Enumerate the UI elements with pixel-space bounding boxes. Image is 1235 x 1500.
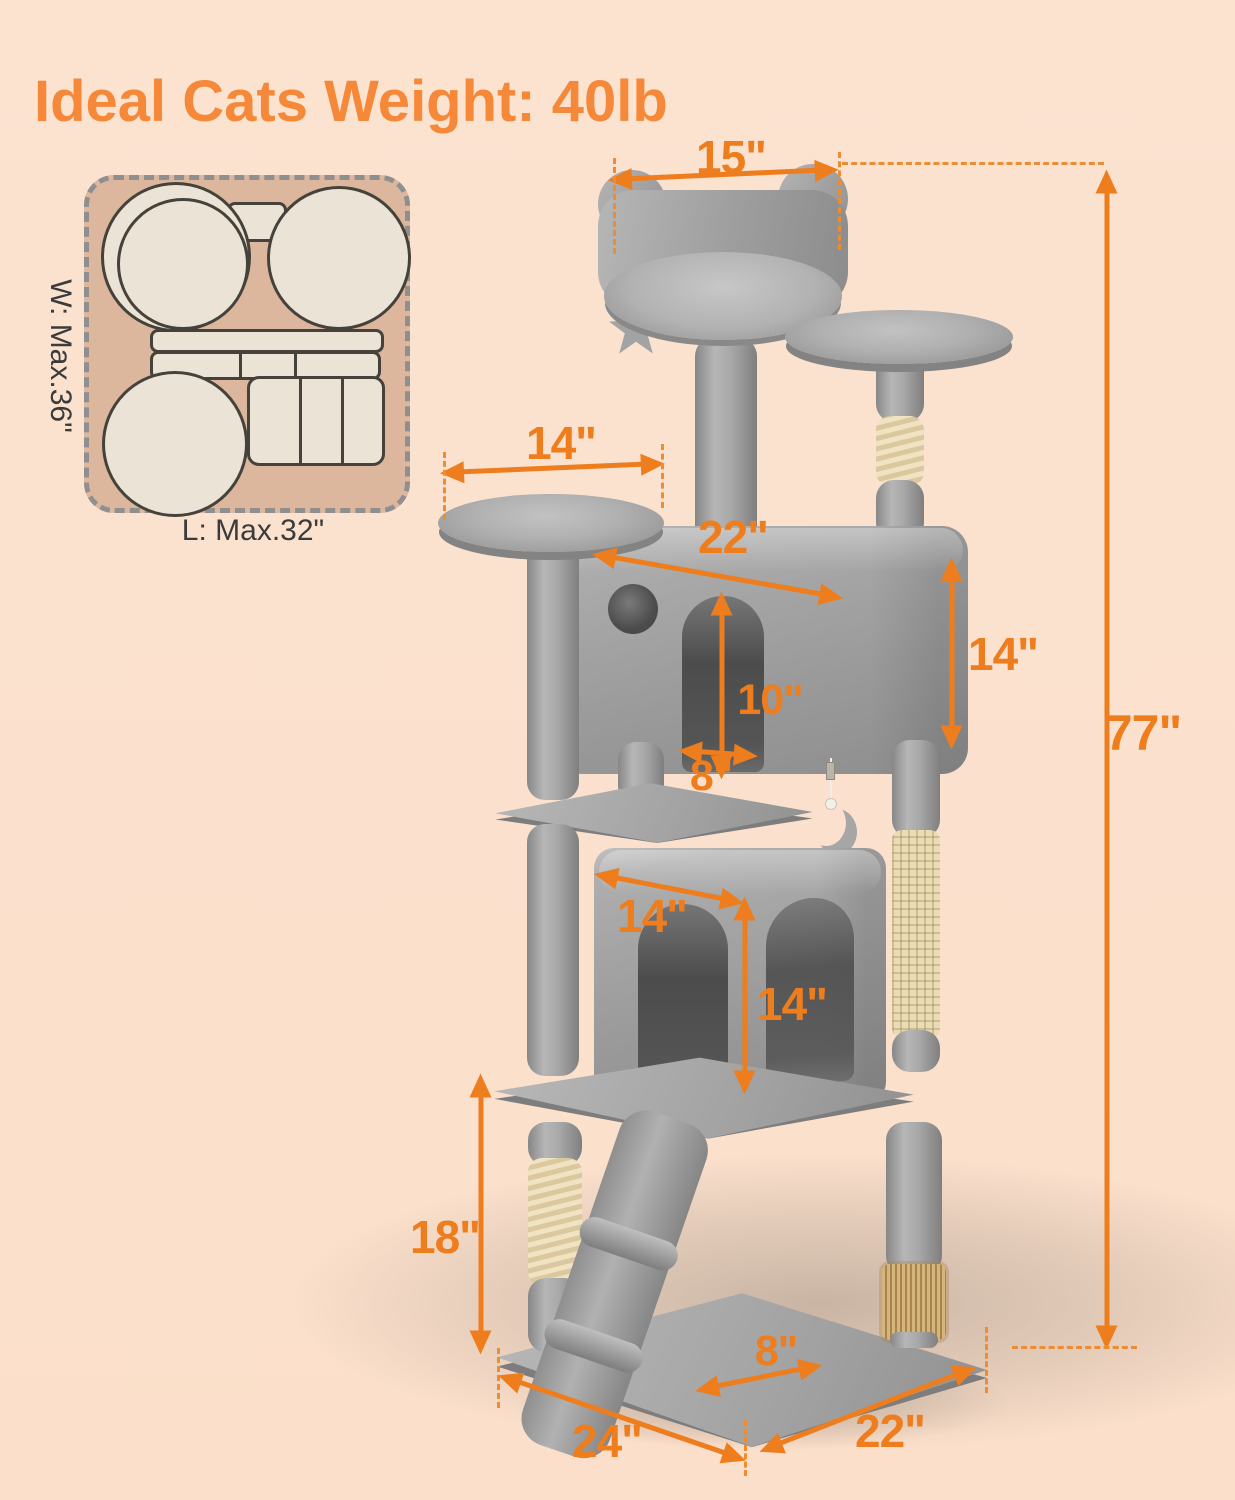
dim-arrow-upper-door-height bbox=[720, 597, 725, 775]
dim-extension-line bbox=[443, 452, 446, 520]
dim-lower-condo-width: 14" bbox=[582, 889, 722, 943]
footprint-divider bbox=[341, 376, 344, 466]
dim-extension-line bbox=[842, 162, 1104, 165]
right-scratch-post-top bbox=[892, 740, 940, 838]
left-round-platform bbox=[438, 494, 664, 552]
dim-upper-platform: 14" bbox=[491, 416, 631, 470]
bottom-right-post bbox=[886, 1122, 942, 1274]
dim-extension-line bbox=[661, 444, 664, 508]
right-round-platform bbox=[785, 310, 1013, 364]
footprint-band-upper bbox=[150, 329, 384, 353]
footprint-width-label: W: Max.36" bbox=[43, 236, 77, 476]
dim-upper-condo-width: 22" bbox=[663, 510, 803, 564]
product-dimension-diagram: Ideal Cats Weight: 40lb W: Max.36" L: Ma… bbox=[0, 0, 1235, 1500]
bottom-right-post-foot bbox=[890, 1332, 938, 1348]
dim-extension-line bbox=[744, 1420, 747, 1476]
right-platform-sisal-section bbox=[876, 416, 924, 486]
grooming-brush bbox=[882, 1264, 946, 1340]
dim-arrow-lower-post-height bbox=[479, 1079, 484, 1350]
footprint-divider bbox=[239, 351, 242, 380]
dim-ramp-width: 8" bbox=[706, 1327, 846, 1376]
dim-base-depth: 22" bbox=[820, 1404, 960, 1458]
dim-base-length: 24" bbox=[537, 1414, 677, 1468]
footprint-divider bbox=[299, 376, 302, 466]
page-title: Ideal Cats Weight: 40lb bbox=[34, 68, 668, 135]
moon-toy-clip bbox=[826, 762, 835, 780]
left-lower-post bbox=[527, 824, 579, 1076]
ramp-rung bbox=[576, 1213, 682, 1275]
dim-overall-height: 77" bbox=[1073, 704, 1213, 762]
footprint-platform-bottom-left bbox=[102, 371, 248, 517]
left-upper-post bbox=[527, 538, 579, 800]
footprint-length-label: L: Max.32" bbox=[133, 514, 373, 548]
footprint-box-bottom-right bbox=[247, 376, 385, 466]
ramp-rung bbox=[540, 1315, 646, 1377]
footprint-bed-top-left-inner bbox=[117, 198, 249, 330]
dim-extension-line bbox=[1012, 1346, 1137, 1349]
dim-lower-post-height: 18" bbox=[375, 1210, 515, 1264]
dim-extension-line bbox=[838, 152, 841, 250]
dim-arrow-upper-condo-height bbox=[950, 563, 955, 745]
dim-extension-line bbox=[613, 158, 616, 254]
footprint-platform-top-right bbox=[267, 186, 411, 330]
dim-extension-line bbox=[497, 1348, 500, 1408]
footprint-inset bbox=[84, 175, 410, 513]
dim-arrow-lower-condo-height bbox=[743, 902, 748, 1090]
dim-arrow-overall-height bbox=[1105, 175, 1110, 1345]
right-scratch-post-sisal bbox=[892, 830, 940, 1038]
dim-upper-door-width: 8" bbox=[641, 752, 781, 801]
upper-condo-peephole bbox=[608, 584, 658, 634]
dim-extension-line bbox=[985, 1327, 988, 1393]
